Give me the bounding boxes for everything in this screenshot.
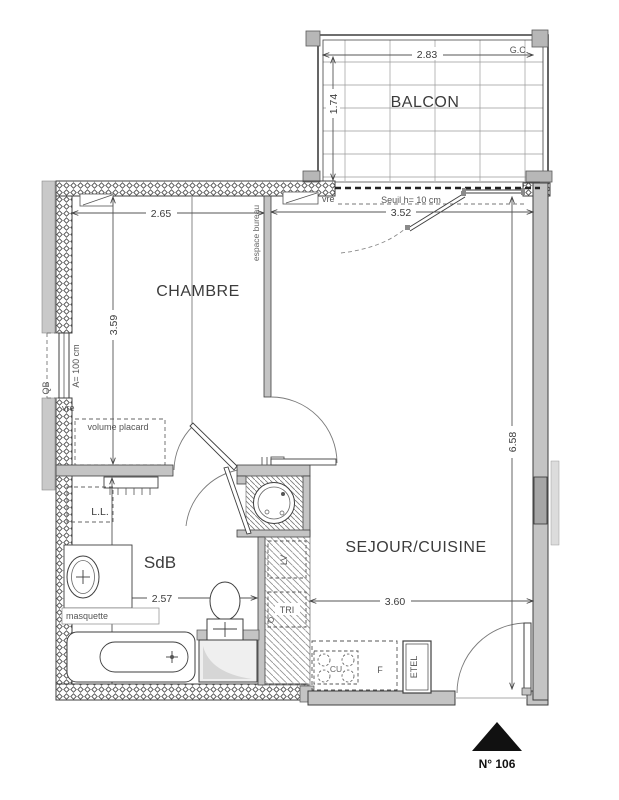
- wall-right: [533, 183, 548, 700]
- sejour-window: [534, 477, 547, 524]
- tall-unit: ETEL: [403, 641, 431, 693]
- closet-note: volume placard: [87, 422, 148, 432]
- balcony-corner-label: G.C.: [510, 45, 529, 55]
- shutter-label-top: vre: [322, 194, 335, 204]
- wall-left-upper: [56, 196, 72, 333]
- shutter-box-1: [80, 194, 113, 206]
- wall-sdb-kitchen-strip: [258, 537, 265, 685]
- kitchen-strip: LV TRI: [265, 537, 310, 685]
- shutter-label-left: vre: [62, 403, 75, 413]
- tall-unit-label: ETEL: [409, 656, 419, 679]
- entry-door-hinge: [522, 688, 531, 695]
- neighbor-wall-band: [42, 398, 55, 490]
- dim-balcony-depth: 1.74: [328, 94, 340, 115]
- partition-chambre-sejour: [264, 196, 271, 397]
- sejour-label: SEJOUR/CUISINE: [345, 539, 486, 556]
- cooktop-label: CU: [330, 664, 342, 674]
- shutter-box-2: [283, 192, 318, 204]
- wall-bottom-sejour: [308, 691, 455, 705]
- water-heater-tank: [254, 483, 295, 524]
- dim-balcony-width: 2.83: [417, 49, 438, 61]
- unit-number: N° 106: [479, 757, 516, 771]
- fridge-label: F: [377, 665, 383, 675]
- tank-fitting: [281, 492, 285, 496]
- sdb-label: SdB: [144, 553, 176, 572]
- wall-chambre-sdb: [56, 465, 173, 476]
- entry-door-leaf: [524, 623, 531, 693]
- closet-wall-north: [237, 465, 310, 476]
- closet-wall-west-stub: [237, 476, 246, 484]
- floor-plan-drawing: 2.83 G.C. 1.74 BALCON: [0, 0, 619, 800]
- washer-label: L.L.: [91, 506, 109, 518]
- window-width-note: A= 100 cm: [71, 344, 81, 387]
- floor-plan-page: 2.83 G.C. 1.74 BALCON: [0, 0, 619, 800]
- toilet: [207, 582, 243, 640]
- washbasin: [64, 545, 132, 608]
- dim-chambre-width: 2.65: [151, 208, 172, 220]
- closet-wall-east: [303, 476, 310, 537]
- appliance-label: LV: [279, 555, 289, 565]
- dim-sdb-width: 2.57: [152, 593, 173, 605]
- window-code: QB: [41, 381, 51, 394]
- balcony-label: BALCON: [391, 94, 460, 111]
- neighbor-wall-band: [42, 181, 55, 333]
- wall-bottom-sdb: [56, 684, 308, 700]
- dim-sejour-height: 6.58: [507, 432, 519, 453]
- threshold-note: Seuil h= 10 cm: [381, 195, 441, 205]
- bathtub: [67, 632, 195, 682]
- outside-ledge: [551, 461, 559, 545]
- dim-sejour-width: 3.60: [385, 596, 406, 608]
- vanity-label: masquette: [66, 611, 108, 621]
- dim-bay-width: 3.52: [391, 207, 412, 219]
- dim-chambre-height: 3.59: [108, 315, 120, 336]
- chambre-label: CHAMBRE: [156, 283, 240, 300]
- sort-label: TRI: [280, 605, 295, 615]
- chambre-door-leaf: [271, 459, 336, 465]
